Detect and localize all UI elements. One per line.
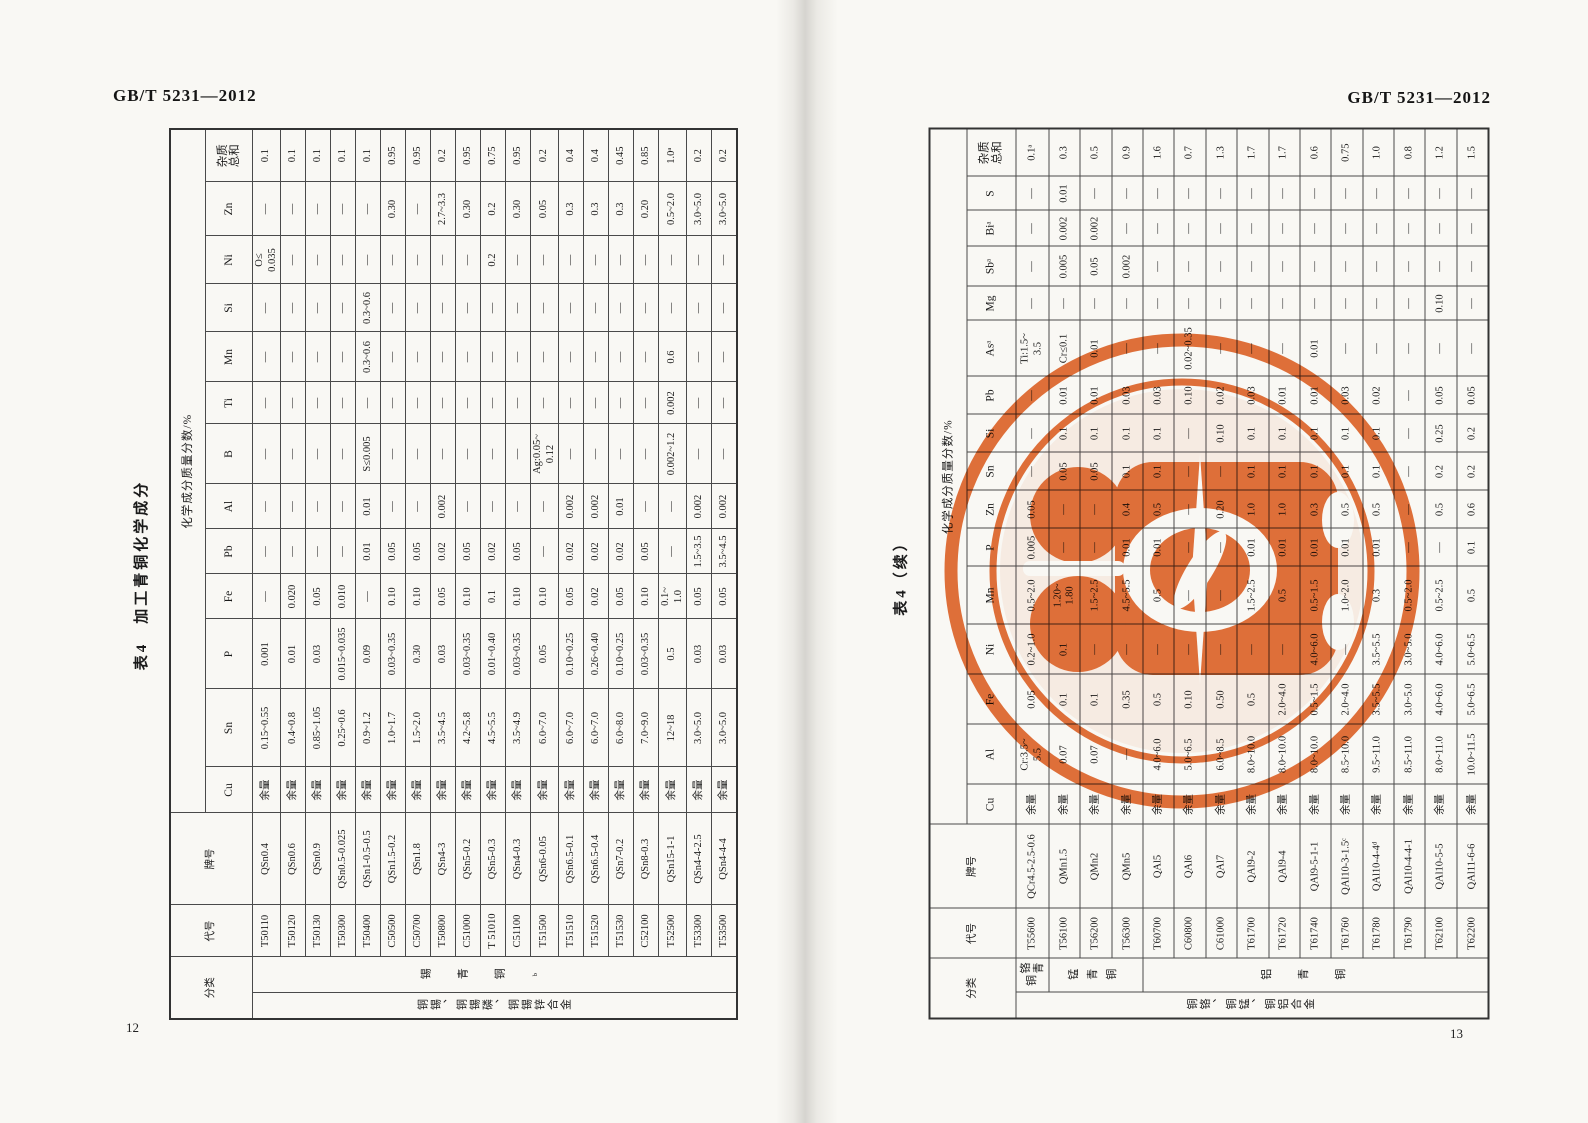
composition-value: 0.3 xyxy=(1363,567,1394,625)
table-row: C51100QSn4-0.3余量3.5~4.90.03~0.350.100.05… xyxy=(506,129,531,1019)
composition-value: — xyxy=(331,182,356,236)
composition-value: 0.05 xyxy=(1080,453,1111,491)
composition-value: 0.002 xyxy=(431,484,456,529)
composition-value: — xyxy=(712,382,738,424)
composition-value: — xyxy=(531,332,559,382)
composition-value: — xyxy=(687,382,712,424)
alloy-grade: QSn0.6 xyxy=(281,813,306,905)
composition-value: — xyxy=(253,529,281,574)
composition-value: 0.03 xyxy=(712,619,738,689)
col-header-element: Zn xyxy=(967,491,1016,529)
composition-value: — xyxy=(687,236,712,284)
col-header-element: 杂质 总和 xyxy=(206,129,253,182)
composition-value: 1.3 xyxy=(1206,128,1237,176)
composition-value: 0.02 xyxy=(481,529,506,574)
composition-value: 1.0~2.0 xyxy=(1331,567,1362,625)
alloy-grade: QSn8-0.3 xyxy=(634,813,659,905)
alloy-grade: QAl9-4 xyxy=(1269,825,1300,909)
composition-value: 0.6 xyxy=(659,332,687,382)
composition-value: 0.02 xyxy=(431,529,456,574)
composition-value: — xyxy=(1174,211,1205,247)
col-header-element: P xyxy=(206,619,253,689)
composition-value: 0.5~2.0 xyxy=(1016,567,1049,625)
composition-value: S≤0.005 xyxy=(356,424,381,484)
table-row: 铜铬、铜锰、铜铝合金铬青铜T55600QCr4.5-2.5-0.6余量Cr:3.… xyxy=(1016,128,1049,1018)
composition-value: 余量 xyxy=(659,767,687,813)
composition-value: 0.4~0.8 xyxy=(281,689,306,767)
composition-value: — xyxy=(281,182,306,236)
composition-value: 3.0~5.0 xyxy=(687,689,712,767)
table-row: C61000QAl7余量6.0~8.50.50———0.20—0.100.02—… xyxy=(1206,128,1237,1018)
composition-value: 0.10 xyxy=(634,574,659,619)
composition-value: 余量 xyxy=(1112,785,1143,825)
alloy-grade: QSn1.8 xyxy=(406,813,431,905)
composition-value: 1.5 xyxy=(1457,128,1489,176)
composition-value: — xyxy=(1206,529,1237,567)
composition-value: — xyxy=(1237,321,1268,377)
table-title-left: 表4 加工青铜化学成分 xyxy=(125,130,155,1020)
composition-value: 0.01 xyxy=(281,619,306,689)
composition-value: — xyxy=(1394,415,1425,453)
composition-value: — xyxy=(1300,287,1331,321)
composition-value: — xyxy=(431,236,456,284)
composition-value: 余量 xyxy=(506,767,531,813)
composition-value: — xyxy=(712,424,738,484)
composition-value: 0.95 xyxy=(456,129,481,182)
composition-value: 0.02 xyxy=(584,529,609,574)
alloy-code: T61760 xyxy=(1331,909,1362,959)
composition-value: 0.26~0.40 xyxy=(584,619,609,689)
composition-value: — xyxy=(481,484,506,529)
composition-value: — xyxy=(1269,211,1300,247)
composition-value: — xyxy=(659,284,687,332)
composition-value: 0.01 xyxy=(1300,529,1331,567)
composition-value: 余量 xyxy=(609,767,634,813)
composition-value: 0.020 xyxy=(281,574,306,619)
composition-value: — xyxy=(306,529,331,574)
alloy-grade: QSn4-4-4 xyxy=(712,813,738,905)
table-row: C50700QSn1.8余量1.5~2.00.300.100.05———————… xyxy=(406,129,431,1019)
col-header-element: Pb xyxy=(967,377,1016,415)
composition-value: 0.02 xyxy=(1363,377,1394,415)
col-header-element: Ni xyxy=(967,625,1016,675)
composition-value: — xyxy=(253,382,281,424)
composition-value: — xyxy=(1425,247,1456,287)
alloy-grade: QSn1-0.5-0.5 xyxy=(356,813,381,905)
composition-value: 8.0~10.0 xyxy=(1300,725,1331,785)
composition-value: — xyxy=(1206,625,1237,675)
composition-value: — xyxy=(531,284,559,332)
alloy-grade: QAl10-4-4-1 xyxy=(1394,825,1425,909)
composition-value: 3.5~5.5 xyxy=(1363,625,1394,675)
composition-value: — xyxy=(506,484,531,529)
composition-value: — xyxy=(1331,247,1362,287)
header-row-main: 分类代号牌号化学成分质量分数/% xyxy=(170,129,206,1019)
composition-value: — xyxy=(406,182,431,236)
composition-value: 1.0~1.7 xyxy=(381,689,406,767)
composition-value: 0.30 xyxy=(406,619,431,689)
composition-value: 0.05 xyxy=(559,574,584,619)
composition-value: 0.1 xyxy=(481,574,506,619)
composition-value: 0.05 xyxy=(1016,491,1049,529)
composition-value: 0.2~1.0 xyxy=(1016,625,1049,675)
composition-value: 0.4 xyxy=(559,129,584,182)
composition-value: 0.1 xyxy=(1300,415,1331,453)
composition-value: 0.01 xyxy=(356,529,381,574)
composition-value: — xyxy=(584,236,609,284)
composition-value: — xyxy=(1080,287,1111,321)
table-row: T51510QSn6.5-0.1余量6.0~7.00.10~0.250.050.… xyxy=(559,129,584,1019)
composition-value: — xyxy=(306,484,331,529)
composition-value: 0.75 xyxy=(1331,128,1362,176)
col-header-group: 化学成分质量分数/% xyxy=(170,129,206,813)
composition-value: 0.7 xyxy=(1174,128,1205,176)
composition-value: — xyxy=(506,424,531,484)
composition-value: — xyxy=(659,529,687,574)
col-header-element: P xyxy=(967,529,1016,567)
composition-value: 余量 xyxy=(306,767,331,813)
alloy-code: T51510 xyxy=(559,905,584,957)
composition-value: 0.03~0.35 xyxy=(634,619,659,689)
composition-value: — xyxy=(1394,377,1425,415)
composition-value: — xyxy=(281,529,306,574)
composition-value: 0.5 xyxy=(1143,675,1174,725)
composition-value: — xyxy=(253,484,281,529)
col-header-element: Si xyxy=(967,415,1016,453)
alloy-code: T62200 xyxy=(1457,909,1489,959)
composition-value: 0.5~2.5 xyxy=(1425,567,1456,625)
composition-value: — xyxy=(456,382,481,424)
col-header-element: B xyxy=(206,424,253,484)
composition-value: 0.1 xyxy=(1300,453,1331,491)
composition-value: — xyxy=(1016,177,1049,211)
col-header-element: Mn xyxy=(206,332,253,382)
composition-value: 0.2 xyxy=(1425,453,1456,491)
composition-value: 0.30 xyxy=(456,182,481,236)
composition-value: 余量 xyxy=(406,767,431,813)
composition-value: — xyxy=(306,236,331,284)
composition-value: — xyxy=(406,332,431,382)
composition-value: 0.5 xyxy=(1237,675,1268,725)
composition-value: 余量 xyxy=(1080,785,1111,825)
composition-value: — xyxy=(1206,287,1237,321)
composition-value: 0.002 xyxy=(659,382,687,424)
composition-value: 0.01 xyxy=(609,484,634,529)
composition-value: 0.2 xyxy=(431,129,456,182)
composition-value: 0.002 xyxy=(1112,247,1143,287)
composition-value: 2.0~4.0 xyxy=(1269,675,1300,725)
col-header-group: 化学成分质量分数/% xyxy=(930,128,967,824)
composition-value: — xyxy=(1363,287,1394,321)
header-row-main: 分类代号牌号化学成分质量分数/% xyxy=(930,128,967,1018)
composition-value: — xyxy=(1394,491,1425,529)
composition-value: 0.3 xyxy=(609,182,634,236)
composition-value: 0.05 xyxy=(531,619,559,689)
composition-value: 4.5~5.5 xyxy=(481,689,506,767)
composition-value: — xyxy=(1457,321,1489,377)
composition-value: — xyxy=(1112,625,1143,675)
composition-value: — xyxy=(1300,211,1331,247)
alloy-code: T61720 xyxy=(1269,909,1300,959)
composition-value: 0.05 xyxy=(634,529,659,574)
composition-value: — xyxy=(1206,211,1237,247)
composition-value: 余量 xyxy=(1174,785,1205,825)
composition-value: 余量 xyxy=(1394,785,1425,825)
composition-value: — xyxy=(1016,415,1049,453)
composition-value: — xyxy=(634,382,659,424)
composition-value: 5.0~6.5 xyxy=(1457,675,1489,725)
table-row: 锰青铜T56100QMn1.5余量0.070.10.11.20~ 1.80——0… xyxy=(1049,128,1080,1018)
composition-value: 0.005 xyxy=(1049,247,1080,287)
composition-value: 4.0~6.0 xyxy=(1425,625,1456,675)
composition-value: — xyxy=(456,284,481,332)
table-row: T53300QSn4-4-2.5余量3.0~5.00.030.051.5~3.5… xyxy=(687,129,712,1019)
composition-value: 0.03 xyxy=(306,619,331,689)
composition-value: 0.1 xyxy=(1143,415,1174,453)
col-header-element: Si xyxy=(206,284,253,332)
table-row: T50120QSn0.6余量0.4~0.80.010.020————————0.… xyxy=(281,129,306,1019)
composition-value: 1.0 xyxy=(1237,491,1268,529)
composition-value: 余量 xyxy=(1300,785,1331,825)
classification-outer-label: 铜铬、铜锰、铜铝合金 xyxy=(1016,993,1489,1019)
col-header-grade: 牌号 xyxy=(170,813,253,905)
composition-value: 0.5 xyxy=(1363,491,1394,529)
composition-value: — xyxy=(1174,625,1205,675)
composition-value: — xyxy=(584,424,609,484)
composition-value: — xyxy=(356,382,381,424)
alloy-grade: QSn6.5-0.4 xyxy=(584,813,609,905)
table-row: T50800QSn4-3余量3.5~4.50.030.050.020.002——… xyxy=(431,129,456,1019)
table-row: T51530QSn7-0.2余量6.0~8.00.10~0.250.050.02… xyxy=(609,129,634,1019)
composition-value: 0.95 xyxy=(381,129,406,182)
composition-value: 0.1~ 1.0 xyxy=(659,574,687,619)
composition-value: 5.0~6.5 xyxy=(1174,725,1205,785)
composition-value: 0.10 xyxy=(1174,377,1205,415)
composition-value: 余量 xyxy=(1049,785,1080,825)
alloy-code: T52500 xyxy=(659,905,687,957)
composition-value: 0.01 xyxy=(1143,529,1174,567)
composition-value: 余量 xyxy=(481,767,506,813)
composition-value: 0.1 xyxy=(1331,415,1362,453)
composition-value: — xyxy=(1363,321,1394,377)
composition-value: — xyxy=(331,332,356,382)
composition-value: 0.05 xyxy=(609,574,634,619)
composition-value: — xyxy=(406,484,431,529)
composition-value: — xyxy=(1174,567,1205,625)
composition-value: 余量 xyxy=(1425,785,1456,825)
col-header-element: Ti xyxy=(206,382,253,424)
composition-value: 6.0~7.0 xyxy=(531,689,559,767)
composition-value: — xyxy=(1206,321,1237,377)
composition-value: 0.45 xyxy=(609,129,634,182)
composition-value: — xyxy=(406,284,431,332)
alloy-code: T50400 xyxy=(356,905,381,957)
composition-value: 2.0~4.0 xyxy=(1331,675,1362,725)
composition-value: — xyxy=(431,332,456,382)
composition-value: 0.1 xyxy=(1363,415,1394,453)
composition-value: — xyxy=(1394,247,1425,287)
composition-value: 余量 xyxy=(1237,785,1268,825)
alloy-grade: QSn5-0.3 xyxy=(481,813,506,905)
composition-value: 0.2 xyxy=(687,129,712,182)
composition-value: 0.1 xyxy=(1080,675,1111,725)
composition-value: 0.5~2.0 xyxy=(659,182,687,236)
composition-value: — xyxy=(1174,415,1205,453)
alloy-grade: QSn4-0.3 xyxy=(506,813,531,905)
composition-value: 1.5~2.5 xyxy=(1080,567,1111,625)
alloy-code: T55600 xyxy=(1016,909,1049,959)
composition-value: — xyxy=(306,424,331,484)
composition-value: — xyxy=(456,484,481,529)
composition-value: 12~18 xyxy=(659,689,687,767)
table-row: T50400QSn1-0.5-0.5余量0.9~1.20.09—0.010.01… xyxy=(356,129,381,1019)
composition-value: 0.85~1.05 xyxy=(306,689,331,767)
table-row: T61700QAl9-2余量8.0~10.00.5—1.5~2.50.011.0… xyxy=(1237,128,1268,1018)
composition-value: — xyxy=(1331,177,1362,211)
composition-value: 0.01 xyxy=(1300,321,1331,377)
col-header-element: Cu xyxy=(967,785,1016,825)
composition-value: 0.1 xyxy=(1237,453,1268,491)
composition-value: — xyxy=(381,424,406,484)
composition-value: 0.07 xyxy=(1080,725,1111,785)
composition-value: — xyxy=(356,574,381,619)
composition-value: — xyxy=(1080,625,1111,675)
composition-value: — xyxy=(456,236,481,284)
classification-outer-label: 铜锡、铜锡磷、铜锡锌合金 xyxy=(253,993,738,1019)
col-header-grade: 牌号 xyxy=(930,825,1016,909)
composition-value: — xyxy=(1331,287,1362,321)
col-header-code: 代号 xyxy=(170,905,253,957)
composition-value: — xyxy=(531,382,559,424)
composition-value: 0.01 xyxy=(1049,377,1080,415)
composition-value: — xyxy=(356,236,381,284)
alloy-grade: QAl10-5-5 xyxy=(1425,825,1456,909)
composition-value: — xyxy=(1269,287,1300,321)
col-header-element: Biᵃ xyxy=(967,211,1016,247)
composition-value: 0.6 xyxy=(1457,491,1489,529)
composition-value: 0.1 xyxy=(253,129,281,182)
col-header-element: S xyxy=(967,177,1016,211)
composition-value: 0.02 xyxy=(559,529,584,574)
composition-value: 0.20 xyxy=(634,182,659,236)
composition-value: 0.01 xyxy=(1300,377,1331,415)
composition-value: 0.30 xyxy=(381,182,406,236)
composition-value: — xyxy=(634,236,659,284)
book-gutter-shadow xyxy=(776,0,838,1123)
table-row: T61760QAl10-3-1.5ᶜ余量8.5~10.02.0~4.0—1.0~… xyxy=(1331,128,1362,1018)
composition-value: 余量 xyxy=(331,767,356,813)
composition-value: — xyxy=(1143,247,1174,287)
composition-value: — xyxy=(381,484,406,529)
composition-value: — xyxy=(712,236,738,284)
composition-value: 0.95 xyxy=(506,129,531,182)
composition-value: 0.05 xyxy=(1457,377,1489,415)
alloy-grade: QAl9-5-1-1 xyxy=(1300,825,1331,909)
classification-inner-label: 锰青铜 xyxy=(1049,959,1143,993)
composition-value: Cr:3.5~ 5.5 xyxy=(1016,725,1049,785)
composition-value: 0.1ᵃ xyxy=(1016,128,1049,176)
composition-value: — xyxy=(634,484,659,529)
composition-value: 余量 xyxy=(559,767,584,813)
composition-value: 0.1 xyxy=(306,129,331,182)
col-header-element: Pb xyxy=(206,529,253,574)
composition-value: — xyxy=(381,284,406,332)
composition-value: 余量 xyxy=(1206,785,1237,825)
composition-value: 0.20 xyxy=(1206,491,1237,529)
alloy-code: T50800 xyxy=(431,905,456,957)
table-row: 铝青铜T60700QAl5余量4.0~6.00.5—0.50.010.50.10… xyxy=(1143,128,1174,1018)
composition-value: — xyxy=(1174,287,1205,321)
composition-value: — xyxy=(1016,453,1049,491)
composition-value: 1.0 xyxy=(1269,491,1300,529)
composition-value: 0.03 xyxy=(1143,377,1174,415)
composition-value: 0.1 xyxy=(1049,625,1080,675)
composition-value: — xyxy=(331,424,356,484)
composition-value: — xyxy=(1425,177,1456,211)
composition-value: — xyxy=(559,284,584,332)
composition-value: — xyxy=(1206,177,1237,211)
composition-value: 0.10 xyxy=(381,574,406,619)
composition-value: 1.0 xyxy=(1363,128,1394,176)
col-header-element: Sn xyxy=(206,689,253,767)
composition-value: 3.5~5.5 xyxy=(1363,675,1394,725)
composition-value: — xyxy=(481,382,506,424)
alloy-grade: QAl10-4-4ᵈ xyxy=(1363,825,1394,909)
composition-value: — xyxy=(559,382,584,424)
alloy-code: T50300 xyxy=(331,905,356,957)
table-row: T61720QAl9-4余量8.0~10.02.0~4.0—0.50.011.0… xyxy=(1269,128,1300,1018)
composition-value: — xyxy=(687,284,712,332)
col-header-element: Sbᵃ xyxy=(967,247,1016,287)
composition-value: 余量 xyxy=(1269,785,1300,825)
composition-value: 0.01 xyxy=(1237,529,1268,567)
composition-value: 0.1 xyxy=(331,129,356,182)
composition-value: — xyxy=(1206,453,1237,491)
composition-value: 0.35 xyxy=(1112,675,1143,725)
composition-value: — xyxy=(306,182,331,236)
composition-value: 3.5~4.5 xyxy=(431,689,456,767)
composition-value: — xyxy=(1363,247,1394,287)
col-header-element: Cu xyxy=(206,767,253,813)
composition-value: 余量 xyxy=(1016,785,1049,825)
composition-value: — xyxy=(281,284,306,332)
composition-value: 余量 xyxy=(456,767,481,813)
composition-value: — xyxy=(331,236,356,284)
composition-value: 0.01 xyxy=(356,484,381,529)
composition-value: 1.7 xyxy=(1269,128,1300,176)
table-row: T53500QSn4-4-4余量3.0~5.00.030.053.5~4.50.… xyxy=(712,129,738,1019)
composition-value: — xyxy=(253,424,281,484)
composition-value: — xyxy=(331,529,356,574)
composition-value: — xyxy=(1112,725,1143,785)
composition-value: — xyxy=(1269,625,1300,675)
composition-value: 0.03~0.35 xyxy=(456,619,481,689)
composition-value: — xyxy=(531,484,559,529)
composition-value: 0.01 xyxy=(1112,529,1143,567)
composition-value: — xyxy=(506,284,531,332)
composition-value: — xyxy=(584,332,609,382)
composition-value: 1.5~2.0 xyxy=(406,689,431,767)
composition-value: 余量 xyxy=(584,767,609,813)
composition-value: 0.3~0.6 xyxy=(356,332,381,382)
composition-value: 5.0~6.5 xyxy=(1457,625,1489,675)
composition-value: 0.30 xyxy=(506,182,531,236)
composition-value: 0.1 xyxy=(1269,415,1300,453)
composition-value: 0.05 xyxy=(531,182,559,236)
composition-value: 2.7~3.3 xyxy=(431,182,456,236)
composition-value: 0.02 xyxy=(584,574,609,619)
bronze-table-block-right: 表4（续） 分类代号牌号化学成分质量分数/%CuAlFeNiMnPZnSnSiP… xyxy=(885,130,1490,1020)
